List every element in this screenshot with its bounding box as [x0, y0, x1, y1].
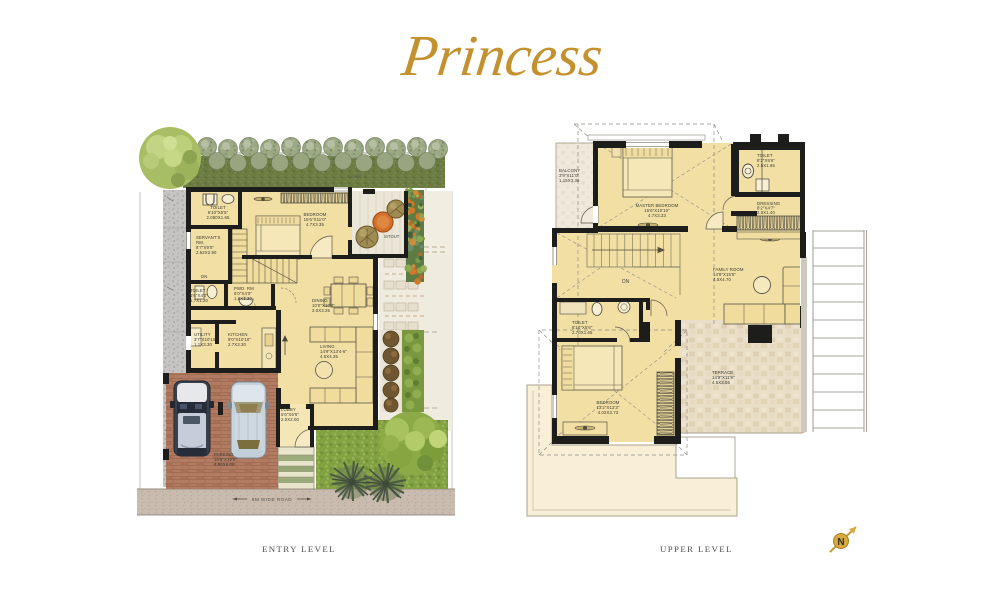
svg-text:3.0X3.25: 3.0X3.25 — [312, 308, 331, 313]
svg-text:UPPER LEVEL: UPPER LEVEL — [660, 544, 733, 554]
svg-text:4.02X3.73: 4.02X3.73 — [598, 410, 619, 415]
svg-text:2.62X2.90: 2.62X2.90 — [196, 250, 217, 255]
svg-text:Princess: Princess — [398, 23, 607, 88]
svg-text:2.080X1.65: 2.080X1.65 — [207, 215, 230, 220]
svg-text:4.7X3.33: 4.7X3.33 — [648, 213, 667, 218]
svg-text:1.15X3.36: 1.15X3.36 — [559, 178, 580, 183]
svg-text:DN: DN — [622, 279, 630, 285]
svg-text:DN: DN — [201, 274, 207, 279]
svg-text:4.5X3.55: 4.5X3.55 — [712, 380, 731, 385]
svg-text:4.99X6.00: 4.99X6.00 — [214, 462, 235, 467]
svg-text:2.0X2.00: 2.0X2.00 — [281, 417, 300, 422]
svg-text:1.8X1.20: 1.8X1.20 — [234, 296, 253, 301]
svg-text:ENTRY LEVEL: ENTRY LEVEL — [262, 544, 336, 554]
svg-text:2.5X1.40: 2.5X1.40 — [757, 210, 776, 215]
svg-text:4.7X3.35: 4.7X3.35 — [306, 222, 325, 227]
svg-text:1.7X1.20: 1.7X1.20 — [190, 298, 209, 303]
svg-text:2.7X3.30: 2.7X3.30 — [228, 342, 247, 347]
svg-text:2.70X1.65: 2.70X1.65 — [572, 330, 593, 335]
svg-text:1.1X3.30: 1.1X3.30 — [194, 342, 213, 347]
svg-text:6M WIDE ROAD: 6M WIDE ROAD — [252, 497, 292, 502]
svg-text:LAWN: LAWN — [348, 174, 362, 179]
svg-text:SITOUT: SITOUT — [384, 234, 400, 239]
svg-text:4.5X4.70: 4.5X4.70 — [713, 277, 732, 282]
svg-text:N: N — [837, 537, 844, 548]
svg-text:2.5X1.65: 2.5X1.65 — [757, 163, 776, 168]
svg-text:4.5X4.35: 4.5X4.35 — [320, 354, 339, 359]
